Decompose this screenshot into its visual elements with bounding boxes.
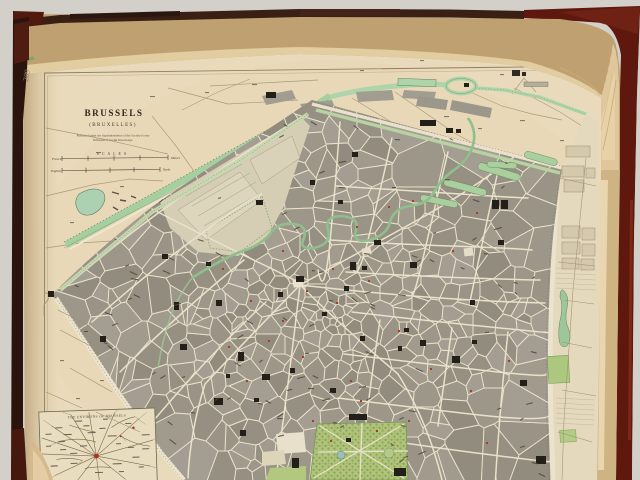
svg-text:(BRUXELLES): (BRUXELLES): [89, 123, 137, 128]
svg-text:Yards: Yards: [163, 168, 171, 172]
svg-text:Published under the Superinten: Published under the Superintendence of t…: [77, 134, 150, 138]
svg-text:French: French: [51, 157, 62, 161]
svg-text:Metres: Metres: [170, 156, 181, 160]
svg-text:English: English: [50, 169, 61, 173]
svg-text:S C A L E S: S C A L E S: [97, 152, 127, 156]
svg-text:BRUSSELS: BRUSSELS: [85, 108, 144, 118]
